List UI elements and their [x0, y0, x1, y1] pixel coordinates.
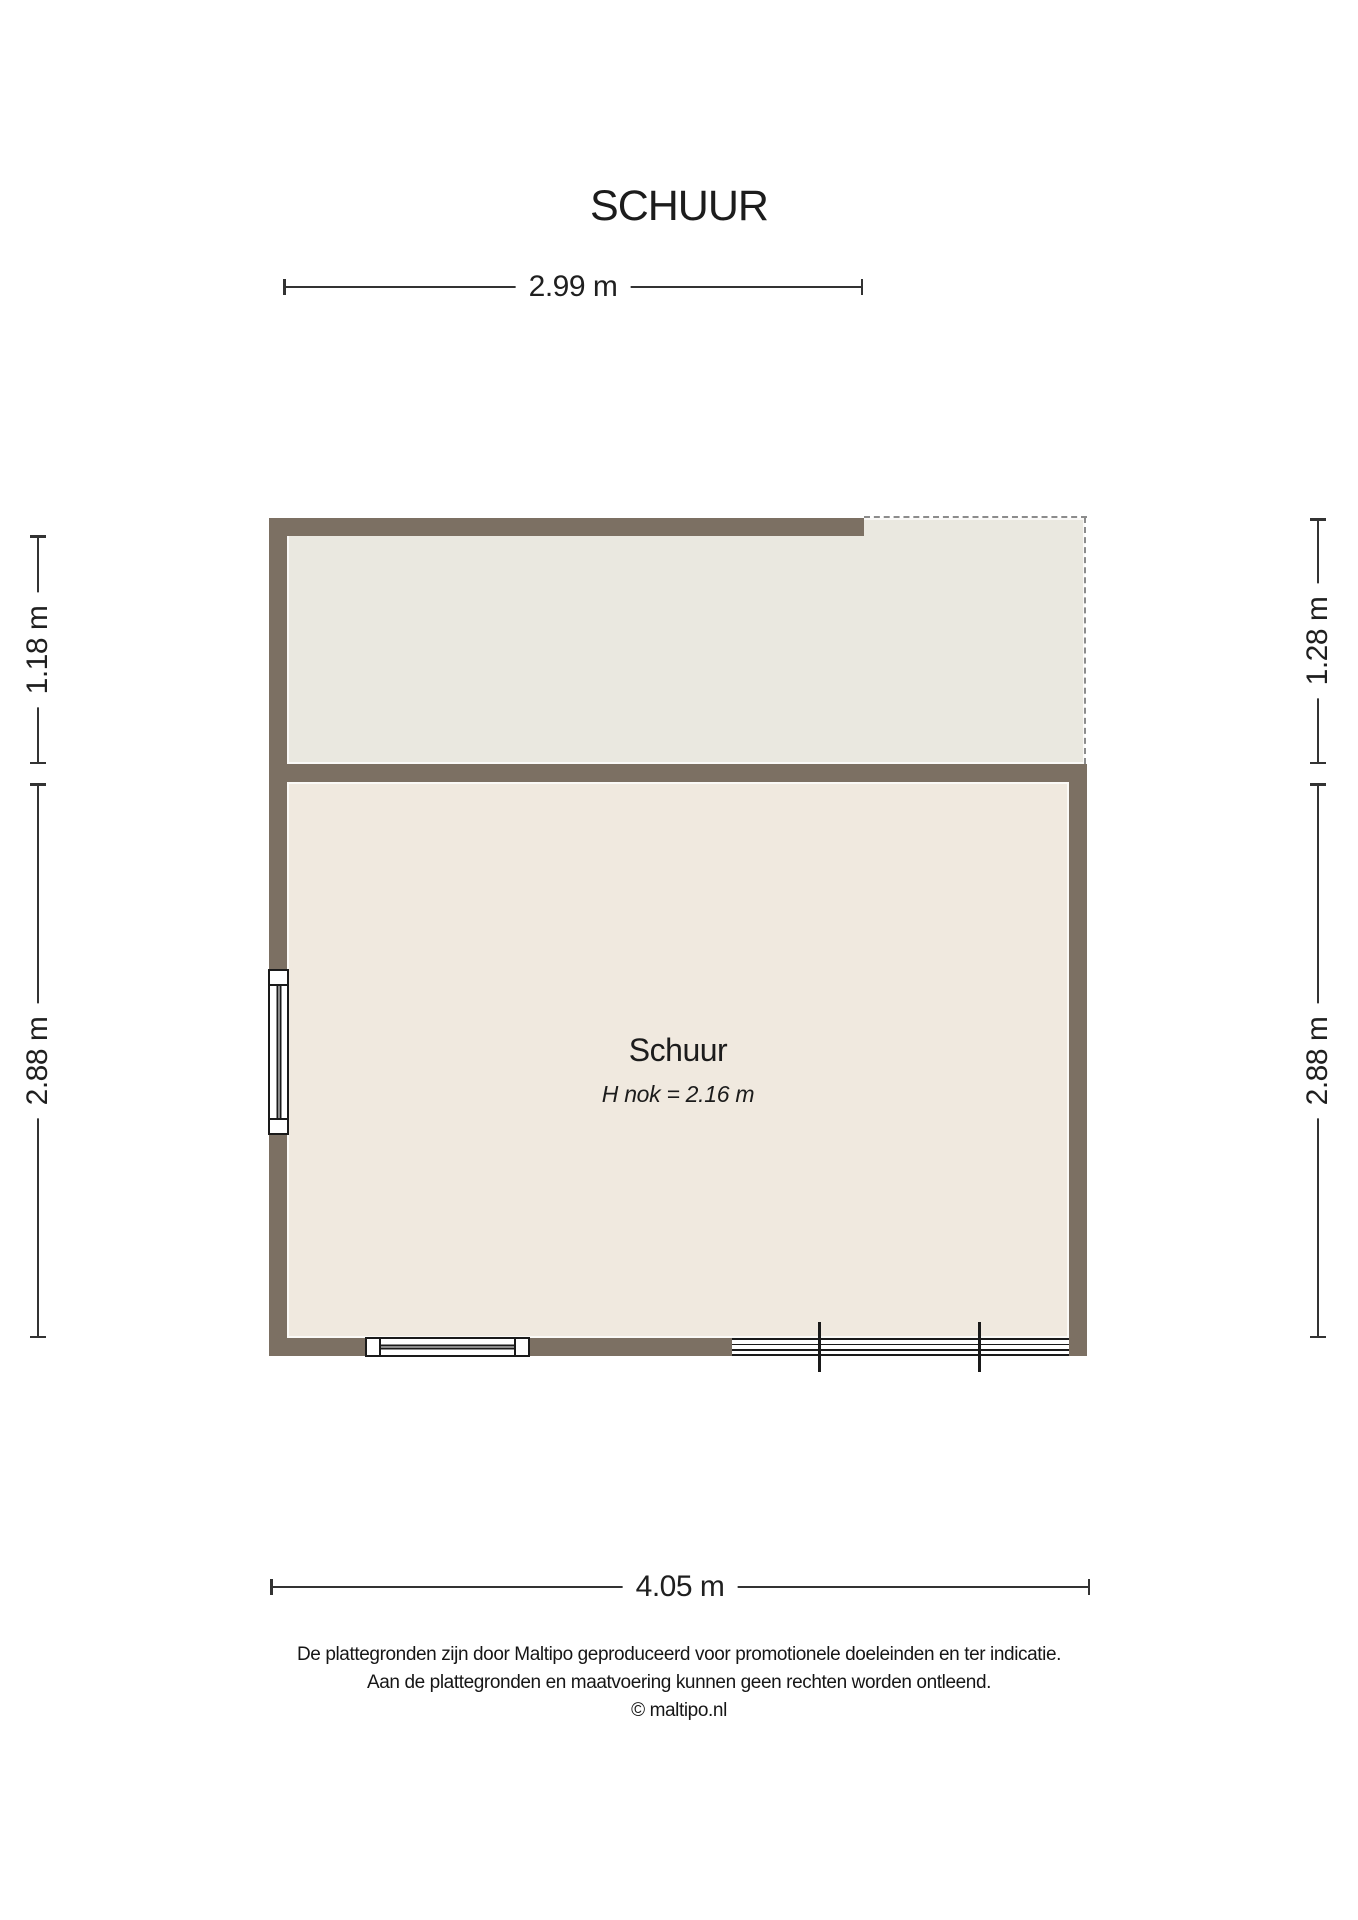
- overhang-dashed-line-right: [1084, 517, 1086, 764]
- door-track-line: [732, 1344, 1069, 1346]
- door-track-line: [732, 1349, 1069, 1351]
- disclaimer-line-1: De plattegronden zijn door Maltipo gepro…: [0, 1641, 1358, 1669]
- room-label: Schuur: [602, 1032, 754, 1069]
- room-height-label: H nok = 2.16 m: [602, 1081, 754, 1108]
- dimension-end-tick: [1088, 1579, 1091, 1595]
- wall-top: [269, 518, 864, 536]
- dimension-left-upper: 1.18 m: [30, 535, 46, 764]
- copyright-line: © maltipo.nl: [0, 1697, 1358, 1725]
- sliding-door-bottom: [732, 1338, 1069, 1356]
- window-frame-line: [270, 1118, 287, 1120]
- dimension-top-width: 2.99 m: [283, 279, 863, 295]
- upper-room-area: [287, 518, 1085, 764]
- plan-title: SCHUUR: [0, 182, 1358, 231]
- window-bottom: [365, 1337, 530, 1357]
- dimension-end-tick: [1310, 518, 1326, 521]
- floorplan-page: SCHUUR 2.99 m Schuur H nok = 2.16: [0, 0, 1358, 1920]
- wall-right: [1069, 764, 1087, 1356]
- dimension-end-tick: [1310, 783, 1326, 786]
- dimension-right-lower: 2.88 m: [1310, 783, 1326, 1338]
- dimension-end-tick: [30, 1336, 46, 1339]
- door-division-tick: [978, 1322, 981, 1372]
- disclaimer-line-2: Aan de plattegronden en maatvoering kunn…: [0, 1669, 1358, 1697]
- dimension-label-left-lower: 2.88 m: [21, 1003, 55, 1118]
- window-frame-line: [514, 1339, 516, 1355]
- window-glass-line: [381, 1345, 514, 1350]
- dimension-label-right-lower: 2.88 m: [1301, 1003, 1335, 1118]
- dimension-label-top: 2.99 m: [516, 270, 631, 304]
- window-glass-line: [276, 986, 281, 1118]
- door-track-line: [732, 1354, 1069, 1356]
- dimension-end-tick: [30, 535, 46, 538]
- overhang-dashed-line-top: [864, 516, 1087, 518]
- dimension-label-left-upper: 1.18 m: [21, 592, 55, 707]
- door-track-line: [732, 1338, 1069, 1340]
- dimension-end-tick: [30, 762, 46, 765]
- dimension-label-bottom: 4.05 m: [623, 1570, 738, 1604]
- dimension-end-tick: [1310, 1336, 1326, 1339]
- window-left: [268, 969, 289, 1135]
- dimension-end-tick: [30, 783, 46, 786]
- dimension-left-lower: 2.88 m: [30, 783, 46, 1338]
- dimension-label-right-upper: 1.28 m: [1301, 584, 1335, 699]
- dimension-end-tick: [283, 279, 286, 295]
- wall-divider: [269, 764, 1087, 782]
- room-label-group: Schuur H nok = 2.16 m: [602, 1032, 754, 1108]
- disclaimer: De plattegronden zijn door Maltipo gepro…: [0, 1641, 1358, 1725]
- dimension-end-tick: [270, 1579, 273, 1595]
- dimension-end-tick: [861, 279, 864, 295]
- dimension-right-upper: 1.28 m: [1310, 518, 1326, 764]
- wall-left: [269, 518, 287, 1356]
- dimension-end-tick: [1310, 762, 1326, 765]
- door-division-tick: [818, 1322, 821, 1372]
- dimension-bottom-width: 4.05 m: [270, 1579, 1090, 1595]
